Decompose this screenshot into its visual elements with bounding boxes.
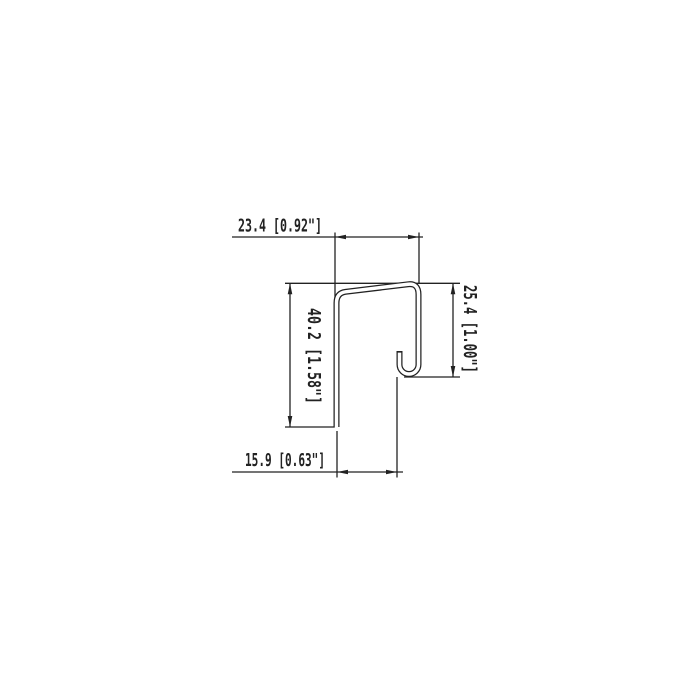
profile-shape bbox=[337, 284, 419, 428]
dimension-lines bbox=[232, 233, 460, 478]
dim-right-height-label: 25.4 [1.00"] bbox=[459, 285, 480, 373]
arrow-left-down-icon bbox=[288, 416, 293, 427]
profile-core bbox=[337, 284, 419, 428]
arrow-bottom-right-icon bbox=[386, 470, 397, 475]
profile-outline bbox=[337, 284, 419, 427]
dim-bottom-width-label: 15.9 [0.63"] bbox=[245, 450, 325, 471]
arrow-left-up-icon bbox=[288, 283, 293, 294]
arrow-right-up-icon bbox=[451, 283, 456, 294]
arrow-right-down-icon bbox=[451, 366, 456, 377]
dim-top-width-label: 23.4 [0.92"] bbox=[238, 216, 322, 237]
arrow-top-right-icon bbox=[408, 235, 419, 240]
drawing-canvas: 23.4 [0.92"] 15.9 [0.63"] 40.2 [1.58"] 2… bbox=[0, 0, 700, 700]
dim-left-height-label: 40.2 [1.58"] bbox=[303, 308, 324, 404]
arrow-top-left-icon bbox=[335, 235, 346, 240]
arrow-bottom-left-icon bbox=[337, 470, 348, 475]
technical-drawing: 23.4 [0.92"] 15.9 [0.63"] 40.2 [1.58"] 2… bbox=[0, 0, 700, 700]
